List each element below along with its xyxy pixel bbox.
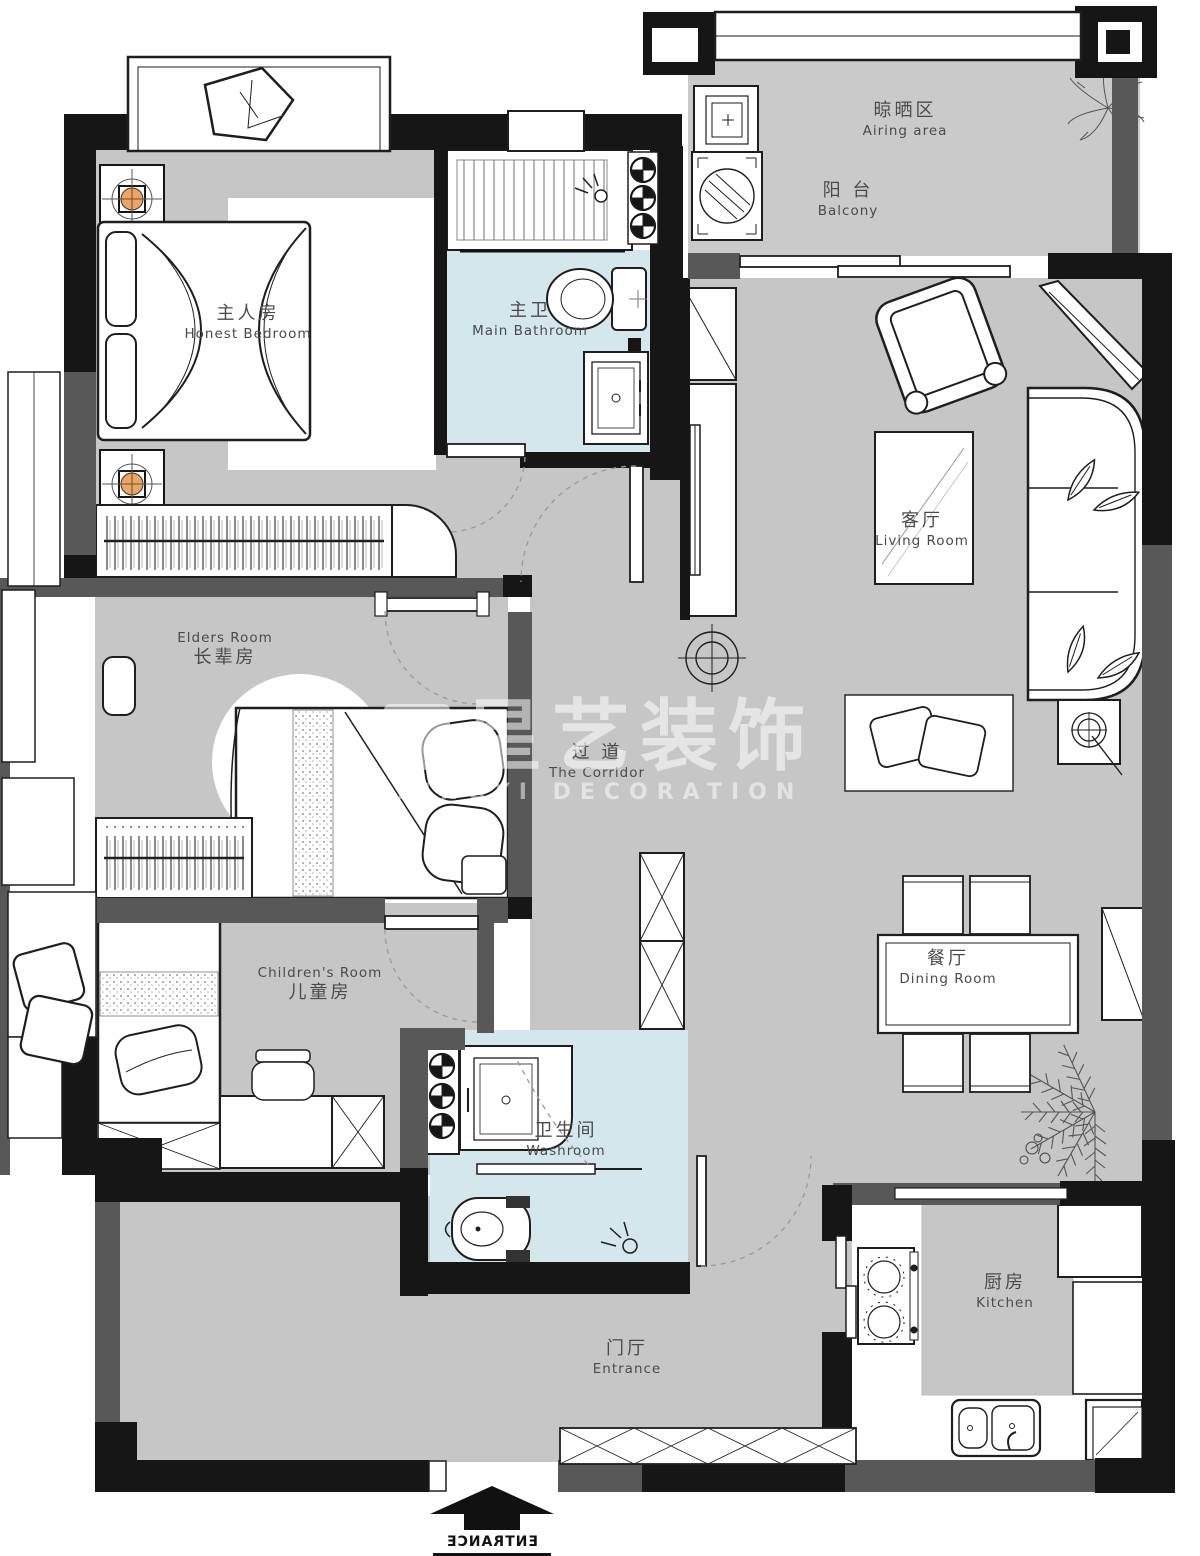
label-en: Children's Room [258,965,383,982]
label-en: Washroom [526,1143,605,1160]
label-en: Honest Bedroom [185,326,312,343]
label-en: Main Bathroom [472,323,588,340]
label-children-room: Children's Room 儿童房 [258,965,383,1004]
elders-wardrobe [96,818,252,898]
label-en: Dining Room [899,971,996,988]
master-wardrobe [96,505,456,577]
label-corridor: 过 道 The Corridor [549,742,645,781]
balcony-sliding-door [740,256,1010,277]
label-en: The Corridor [549,765,645,782]
stove [858,1248,918,1344]
dining-chair [970,876,1030,934]
label-en: Airing area [863,123,948,140]
entry-door-leaf [697,1156,706,1266]
entrance-arrow-icon [430,1486,554,1514]
label-zh: 晾晒区 [863,100,948,123]
bay-window-master [128,57,390,151]
shoe-cabinet [560,1428,856,1464]
label-zh: 卫生间 [526,1120,605,1143]
elders-nightstand [103,657,135,715]
label-zh: 长辈房 [177,647,272,670]
label-zh: 餐厅 [899,948,996,971]
balcony-sink [694,86,758,152]
label-en: Kitchen [976,1295,1034,1312]
label-en: Entrance [593,1361,662,1378]
shower-area [447,150,632,251]
label-zh: 主卫 [472,300,588,323]
elders-bed [231,708,508,898]
entrance-marker: ENTRANCE [422,1486,562,1556]
label-zh: 客厅 [875,510,969,533]
toilet-washroom [446,1196,531,1262]
label-main-bathroom: 主卫 Main Bathroom [472,300,588,339]
label-en: Living Room [875,533,969,550]
window-left-elders [2,590,35,762]
children-desk [220,1096,384,1168]
label-airing-area: 晾晒区 Airing area [863,100,948,139]
bathroom-sink [584,352,648,444]
label-zh: 门厅 [593,1338,662,1361]
side-table-lamp [1058,700,1122,775]
stool-jar [252,1050,314,1100]
label-dining-room: 餐厅 Dining Room [899,948,996,987]
label-en: Balcony [818,203,879,220]
washroom-pipes [425,1046,459,1154]
label-zh: 主人房 [185,303,312,326]
top-cabinet [508,111,584,151]
kitchen-pass-window [895,1188,1067,1199]
label-zh: 厨房 [976,1272,1034,1295]
master-bedroom-furniture [96,165,456,577]
master-door-leaf [630,466,643,582]
sofa [1028,388,1145,700]
cabinet-left [2,778,74,885]
label-living-room: 客厅 Living Room [875,510,969,549]
children-bed [98,905,220,1169]
label-kitchen: 厨房 Kitchen [976,1272,1034,1311]
label-master-bedroom: 主人房 Honest Bedroom [185,303,312,342]
dining-chair [903,876,963,934]
label-entrance-hall: 门厅 Entrance [593,1338,662,1377]
elders-door-leaf [385,598,478,611]
kitchen-upper-cabinet [1058,1205,1142,1277]
washing-machine [692,152,762,240]
bathroom-door-leaf [447,444,525,457]
pipes-bathroom [628,152,658,244]
label-zh: 儿童房 [258,982,383,1005]
label-zh: 阳 台 [818,180,879,203]
label-washroom: 卫生间 Washroom [526,1120,605,1159]
coffee-table-rug [875,432,973,584]
sideboard [1102,908,1144,1020]
fridge [1086,1400,1142,1460]
entrance-arrow-stem [464,1514,520,1530]
corridor-cabinet [640,853,684,1029]
dining-chair [903,1034,963,1092]
label-en: Elders Room [177,630,272,647]
label-zh: 过 道 [549,742,645,765]
kitchen-counter [1073,1282,1143,1394]
dining-chair [970,1034,1030,1092]
label-elders-room: Elders Room 长辈房 [177,630,272,669]
tv-cabinet [682,288,736,616]
kitchen-sink [952,1400,1040,1456]
pillow-rug [845,695,1013,791]
children-door-leaf [385,916,478,929]
entrance-label: ENTRANCE [446,1534,538,1550]
label-balcony: 阳 台 Balcony [818,180,879,219]
